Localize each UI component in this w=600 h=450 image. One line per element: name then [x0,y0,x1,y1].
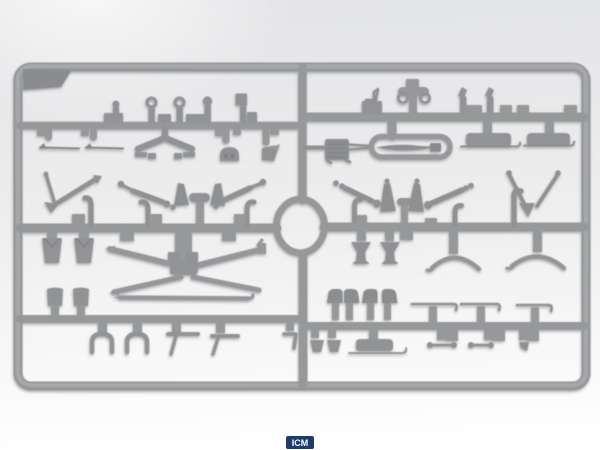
svg-text:ICM: ICM [292,438,309,448]
